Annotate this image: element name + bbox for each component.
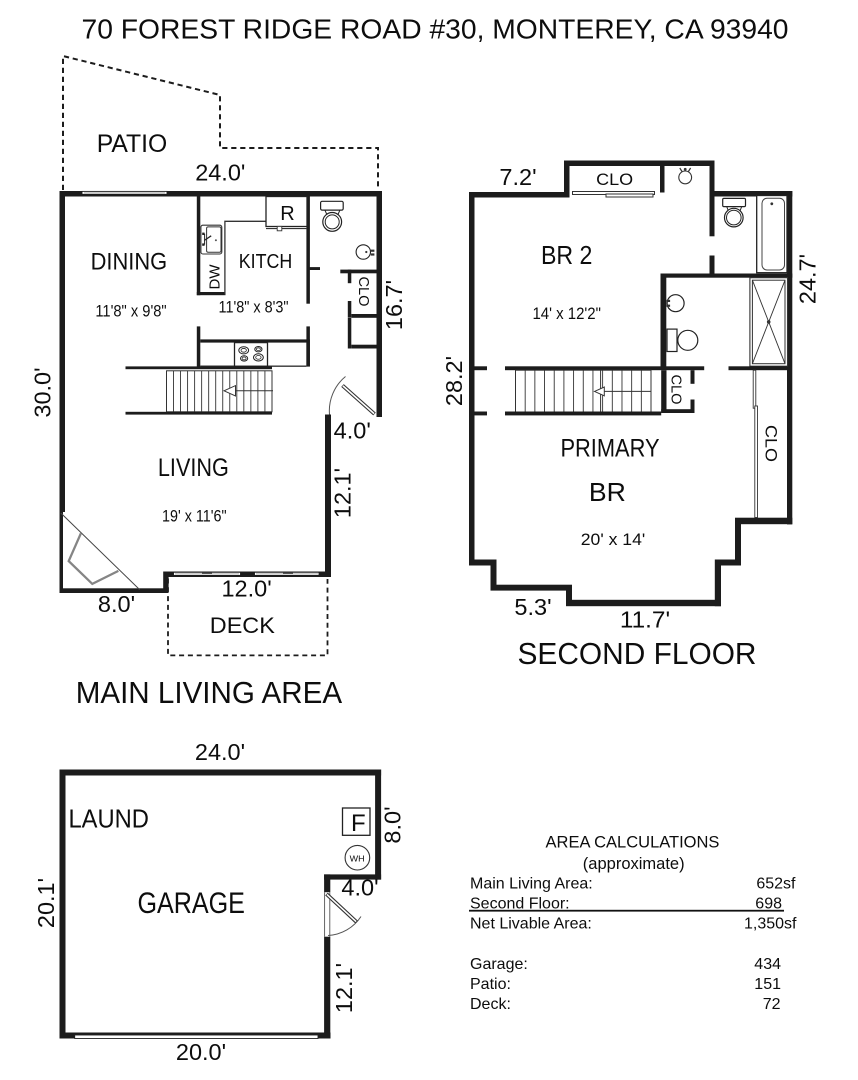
svg-text:MAIN LIVING AREA: MAIN LIVING AREA bbox=[76, 675, 343, 710]
svg-text:BR 2: BR 2 bbox=[541, 240, 593, 270]
svg-text:SECOND FLOOR: SECOND FLOOR bbox=[518, 636, 757, 671]
svg-text:DECK: DECK bbox=[210, 613, 275, 638]
svg-text:20' x 14': 20' x 14' bbox=[581, 530, 646, 549]
svg-text:5.3': 5.3' bbox=[514, 594, 551, 620]
svg-text:Patio:: Patio: bbox=[470, 976, 511, 993]
svg-text:AREA CALCULATIONS: AREA CALCULATIONS bbox=[546, 834, 720, 852]
svg-text:F: F bbox=[351, 810, 366, 837]
svg-text:28.2': 28.2' bbox=[441, 356, 467, 406]
svg-text:1,350sf: 1,350sf bbox=[744, 916, 797, 933]
svg-text:Deck:: Deck: bbox=[470, 996, 511, 1013]
svg-text:24.7': 24.7' bbox=[795, 254, 821, 304]
svg-text:CLO: CLO bbox=[596, 170, 633, 189]
svg-text:72: 72 bbox=[763, 996, 781, 1013]
svg-text:PRIMARY: PRIMARY bbox=[561, 435, 660, 463]
svg-text:70 FOREST RIDGE ROAD #30, MONT: 70 FOREST RIDGE ROAD #30, MONTEREY, CA 9… bbox=[82, 14, 789, 45]
svg-text:DINING: DINING bbox=[91, 249, 168, 276]
svg-text:11.7': 11.7' bbox=[620, 607, 670, 633]
svg-text:Main Living Area:: Main Living Area: bbox=[470, 876, 593, 893]
svg-text:16.7': 16.7' bbox=[381, 280, 407, 330]
svg-text:8.0': 8.0' bbox=[98, 591, 135, 617]
svg-text:WH: WH bbox=[350, 854, 365, 864]
svg-text:Garage:: Garage: bbox=[470, 956, 528, 973]
svg-text:R: R bbox=[280, 203, 294, 225]
svg-text:20.1': 20.1' bbox=[33, 878, 59, 928]
svg-text:434: 434 bbox=[754, 956, 781, 973]
svg-text:8.0': 8.0' bbox=[380, 806, 406, 843]
svg-text:12.0': 12.0' bbox=[222, 576, 272, 602]
svg-text:151: 151 bbox=[754, 976, 781, 993]
svg-text:CLO: CLO bbox=[355, 277, 372, 307]
svg-text:GARAGE: GARAGE bbox=[137, 887, 245, 920]
svg-text:24.0': 24.0' bbox=[195, 739, 245, 765]
svg-text:14' x 12'2": 14' x 12'2" bbox=[532, 304, 601, 323]
svg-text:19' x 11'6": 19' x 11'6" bbox=[162, 507, 227, 526]
svg-text:11'8" x 9'8": 11'8" x 9'8" bbox=[95, 302, 166, 321]
svg-text:BR: BR bbox=[589, 479, 626, 507]
svg-text:LIVING: LIVING bbox=[158, 454, 229, 482]
svg-text:DW: DW bbox=[207, 264, 224, 290]
svg-text:CLO: CLO bbox=[668, 375, 685, 405]
svg-text:(approximate): (approximate) bbox=[583, 855, 685, 873]
svg-text:652sf: 652sf bbox=[756, 876, 796, 893]
svg-text:12.1': 12.1' bbox=[331, 963, 357, 1013]
svg-text:4.0': 4.0' bbox=[341, 875, 378, 901]
svg-text:11'8" x 8'3": 11'8" x 8'3" bbox=[219, 297, 289, 316]
svg-text:7.2': 7.2' bbox=[499, 164, 536, 190]
svg-text:30.0': 30.0' bbox=[30, 367, 56, 417]
svg-text:12.1': 12.1' bbox=[330, 468, 356, 518]
svg-text:Net Livable Area:: Net Livable Area: bbox=[470, 916, 592, 933]
svg-text:CLO: CLO bbox=[762, 425, 781, 462]
svg-text:4.0': 4.0' bbox=[334, 418, 371, 444]
svg-text:20.0': 20.0' bbox=[176, 1039, 226, 1065]
svg-text:KITCH: KITCH bbox=[239, 251, 293, 273]
svg-text:LAUND: LAUND bbox=[68, 804, 149, 834]
svg-text:24.0': 24.0' bbox=[195, 160, 245, 186]
svg-text:PATIO: PATIO bbox=[97, 130, 168, 158]
